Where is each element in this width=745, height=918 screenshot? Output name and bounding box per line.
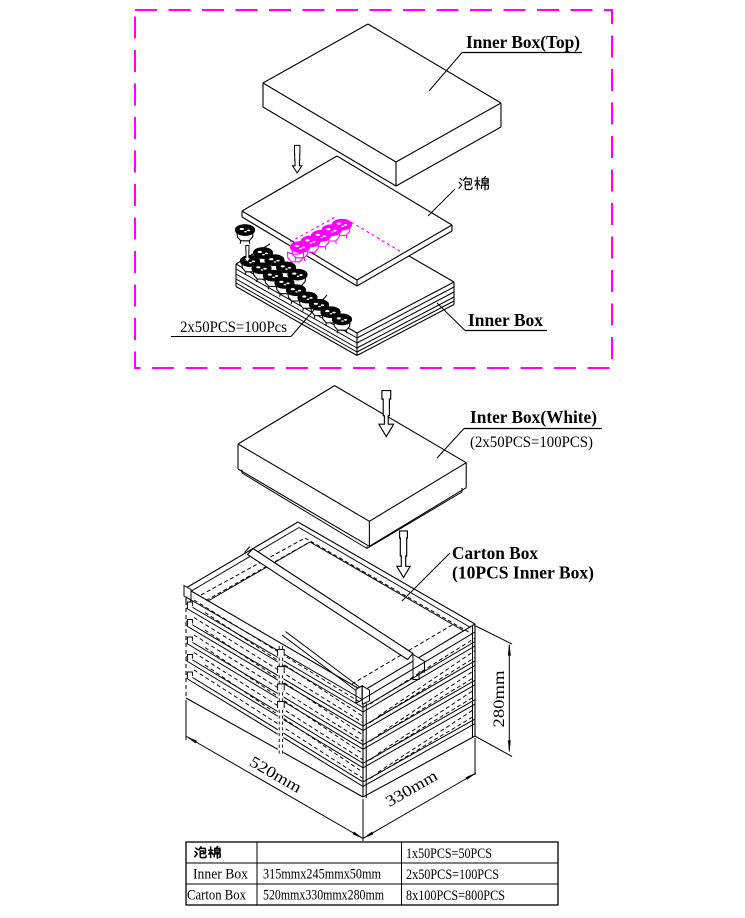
svg-text:Carton Box: Carton Box	[452, 543, 538, 563]
svg-text:Inner Box: Inner Box	[193, 867, 249, 883]
svg-text:Carton Box: Carton Box	[187, 888, 247, 904]
svg-text:1x50PCS=50PCS: 1x50PCS=50PCS	[406, 846, 492, 862]
svg-text:8x100PCS=800PCS: 8x100PCS=800PCS	[406, 888, 505, 904]
svg-text:(2x50PCS=100PCS): (2x50PCS=100PCS)	[470, 434, 593, 451]
svg-text:315mmx245mmx50mm: 315mmx245mmx50mm	[263, 867, 382, 883]
svg-text:Inner Box(Top): Inner Box(Top)	[466, 32, 580, 53]
svg-text:Inner Box: Inner Box	[468, 310, 543, 330]
svg-text:520mmx330mmx280mm: 520mmx330mmx280mm	[263, 888, 385, 904]
svg-text:Inter Box(White): Inter Box(White)	[470, 407, 597, 428]
svg-text:(10PCS Inner Box): (10PCS Inner Box)	[452, 563, 594, 584]
svg-text:280mm: 280mm	[491, 670, 508, 728]
svg-text:2x50PCS=100Pcs: 2x50PCS=100Pcs	[180, 319, 287, 336]
svg-text:2x50PCS=100PCS: 2x50PCS=100PCS	[406, 867, 499, 883]
